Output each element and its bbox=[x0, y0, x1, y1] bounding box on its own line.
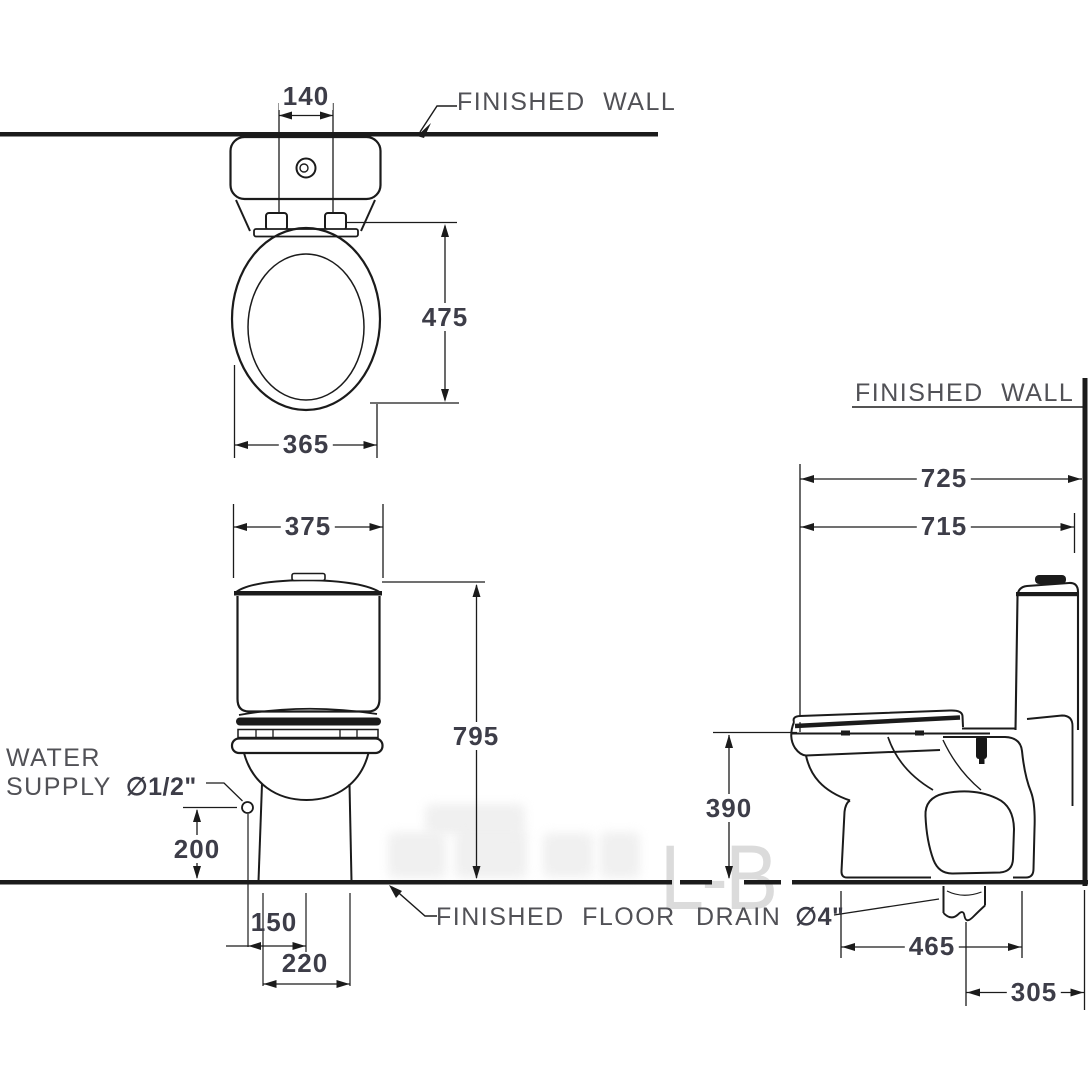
dim-715: 715 bbox=[917, 512, 971, 540]
water-supply-line2: SUPPLY bbox=[6, 773, 112, 801]
water-supply-size: ∅1/2" bbox=[126, 772, 197, 802]
dim-365: 365 bbox=[279, 430, 333, 458]
water-supply-label: WATER SUPPLY ∅1/2" bbox=[6, 744, 197, 802]
technical-drawing-page: L-B bbox=[0, 0, 1090, 1090]
dim-795: 795 bbox=[449, 722, 503, 750]
dim-150: 150 bbox=[247, 908, 301, 936]
dim-200: 200 bbox=[170, 835, 224, 863]
dim-375: 375 bbox=[281, 512, 335, 540]
drain-label: DRAIN ∅4" bbox=[696, 902, 844, 932]
drain-text: DRAIN bbox=[696, 903, 781, 931]
drain-size: ∅4" bbox=[795, 902, 844, 932]
finished-wall-top-label: FINISHED WALL bbox=[457, 88, 676, 116]
dim-725: 725 bbox=[917, 464, 971, 492]
annotation-layer: 140 FINISHED WALL 475 365 375 795 WATER … bbox=[0, 0, 1090, 1090]
water-supply-line1: WATER bbox=[6, 744, 197, 772]
dim-220: 220 bbox=[278, 949, 332, 977]
dim-465: 465 bbox=[905, 932, 959, 960]
dim-305: 305 bbox=[1007, 978, 1061, 1006]
dim-475: 475 bbox=[418, 303, 472, 331]
finished-floor-label: FINISHED FLOOR bbox=[436, 903, 676, 931]
dim-140: 140 bbox=[279, 82, 333, 110]
finished-wall-right-label: FINISHED WALL bbox=[855, 379, 1074, 407]
dim-390: 390 bbox=[702, 794, 756, 822]
